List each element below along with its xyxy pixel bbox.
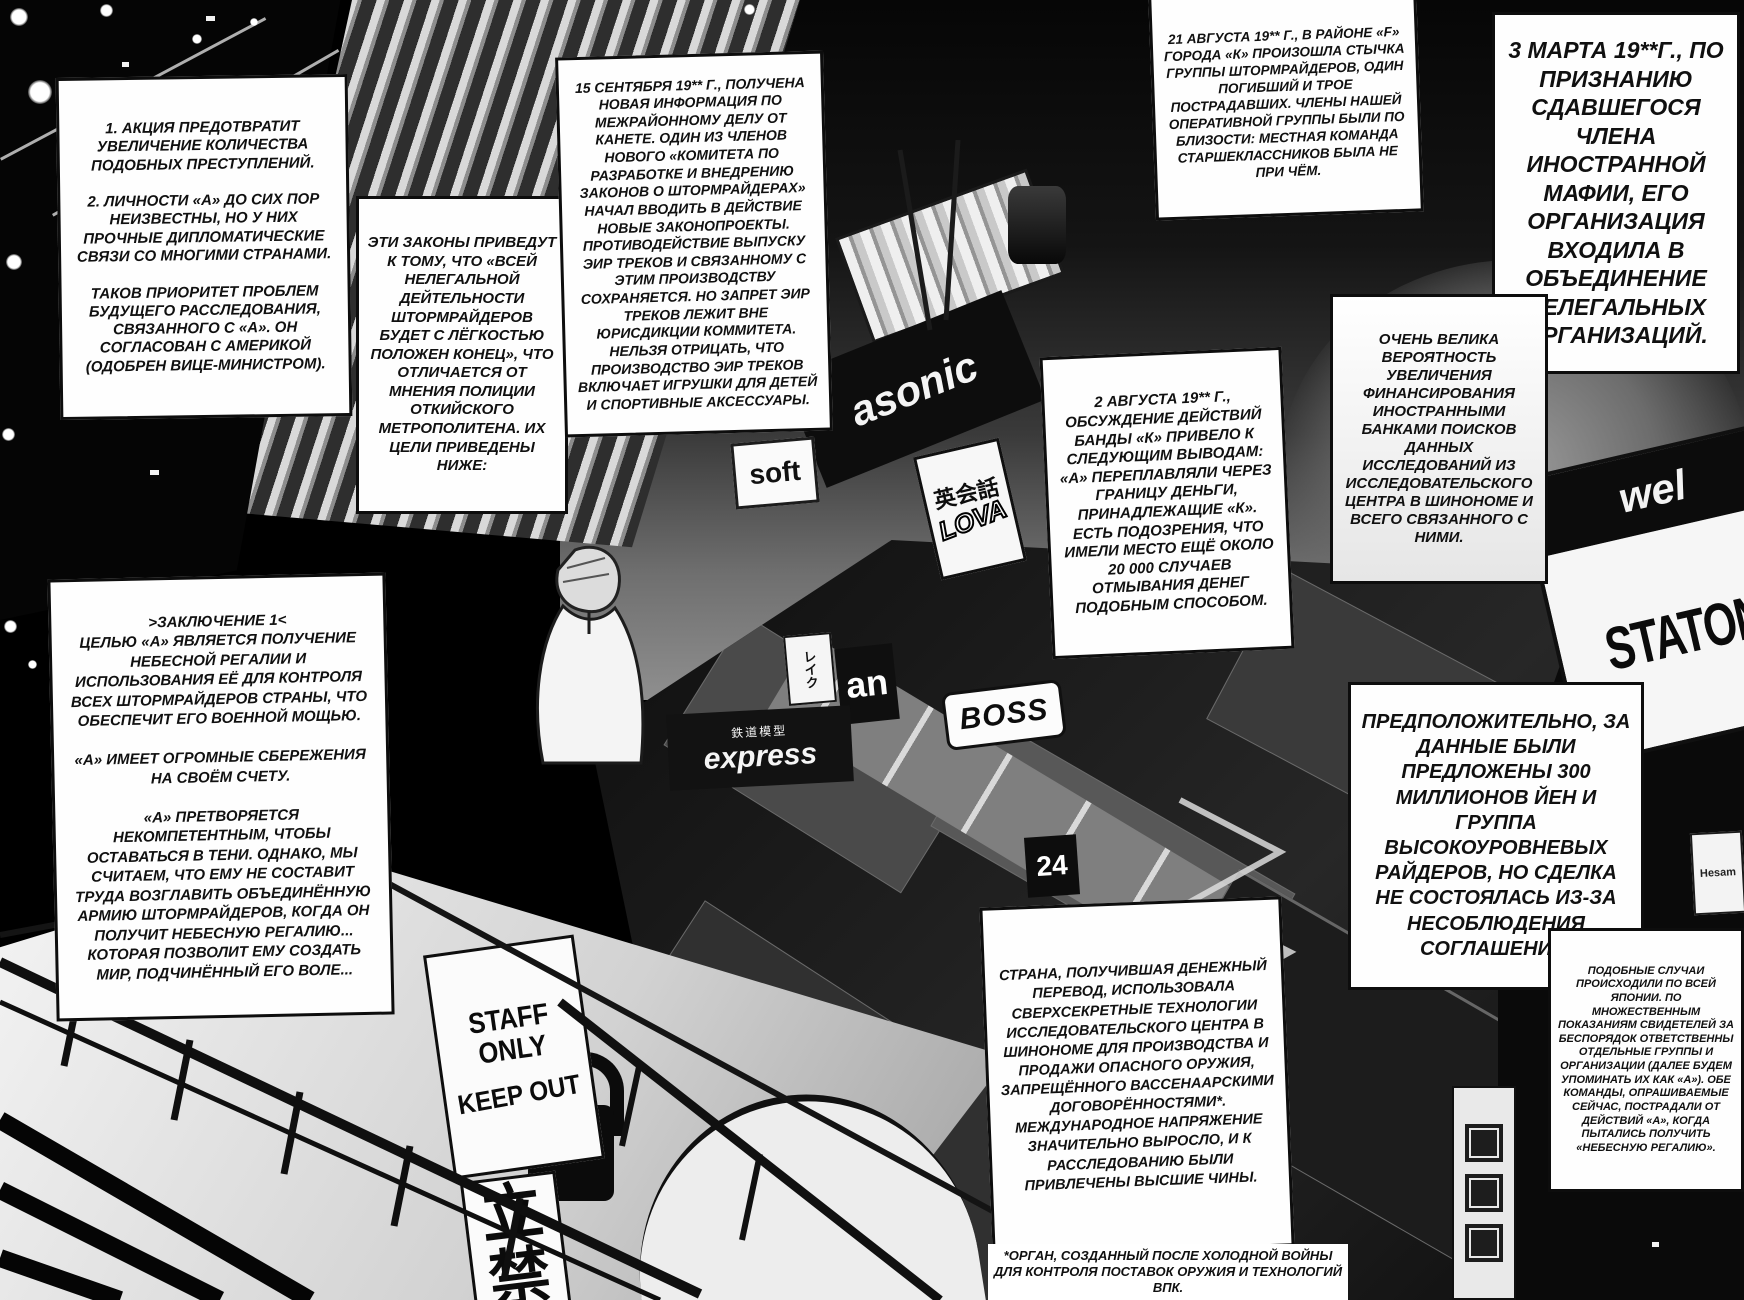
bokeh-light: [2, 428, 15, 441]
an-label: an: [844, 661, 890, 707]
kanji-glyph: [1465, 1174, 1503, 1212]
staff-only-sign: STAFF ONLY KEEP OUT: [423, 935, 605, 1180]
caption-august2-report: 2 АВГУСТА 19** Г., ОБСУЖДЕНИЕ ДЕЙСТВИЙ Б…: [1040, 347, 1295, 659]
express-label: express: [703, 737, 818, 777]
bokeh-light: [4, 620, 17, 633]
kanji-glyph: [1465, 1124, 1503, 1162]
vertical-kanji-sign: [1452, 1086, 1516, 1300]
keep-out-label: KEEP OUT: [456, 1070, 583, 1120]
bokeh-light: [28, 80, 52, 104]
caption-laws: ЭТИ ЗАКОНЫ ПРИВЕДУТ К ТОМУ, ЧТО «ВСЕЙ НЕ…: [356, 196, 568, 514]
station-big-text: STATON: [1598, 580, 1744, 684]
caption-action-plan: 1. АКЦИЯ ПРЕДОТВРАТИТ УВЕЛИЧЕНИЕ КОЛИЧЕС…: [56, 74, 353, 420]
kanji-glyph: [1465, 1224, 1503, 1262]
window-light: [150, 470, 159, 475]
reiku-label: レイク: [799, 649, 821, 690]
bokeh-light: [6, 254, 22, 270]
hesam-label: Hesam: [1700, 866, 1737, 880]
caption-country: СТРАНА, ПОЛУЧИВШАЯ ДЕНЕЖНЫЙ ПЕРЕВОД, ИСП…: [979, 896, 1294, 1257]
window-light: [1652, 1242, 1659, 1247]
bokeh-light: [28, 660, 37, 669]
bokeh-light: [744, 4, 755, 15]
hesam-sign: Hesam: [1690, 831, 1744, 916]
bokeh-light: [100, 4, 113, 17]
bokeh-light: [10, 8, 28, 26]
caption-footnote: *ОРГАН, СОЗДАННЫЙ ПОСЛЕ ХОЛОДНОЙ ВОЙНЫ Д…: [988, 1244, 1348, 1300]
reiku-sign: レイク: [783, 632, 837, 706]
staff-only-label: STAFF ONLY: [467, 999, 555, 1070]
caption-funding-probability: ОЧЕНЬ ВЕЛИКА ВЕРОЯТНОСТЬ УВЕЛИЧЕНИЯ ФИНА…: [1330, 294, 1548, 584]
caption-august21-report: 21 АВГУСТА 19** Г., В РАЙОНЕ «F» ГОРОДА …: [1148, 0, 1424, 221]
boss-label: BOSS: [958, 693, 1051, 738]
express-sign: 鉄道模型 express: [666, 705, 854, 791]
bokeh-light: [250, 18, 258, 26]
caption-conclusion: >ЗАКЛЮЧЕНИЕ 1< ЦЕЛЬЮ «А» ЯВЛЯЕТСЯ ПОЛУЧЕ…: [47, 573, 394, 1022]
caption-september-report: 15 СЕНТЯБРЯ 19** Г., ПОЛУЧЕНА НОВАЯ ИНФО…: [555, 51, 833, 438]
sign-24: 24: [1024, 834, 1080, 897]
window-light: [122, 62, 129, 67]
sign-24-label: 24: [1035, 849, 1068, 883]
panasonic-sign-label: asonic: [843, 342, 984, 436]
manga-page: asonic soft 英会話 LOVA レイク an 鉄道模型 express…: [0, 0, 1744, 1300]
window-light: [206, 16, 215, 21]
soft-sign: soft: [730, 436, 819, 509]
bokeh-light: [192, 34, 202, 44]
no-entry-kanji-label: 立 禁: [477, 1178, 554, 1300]
no-entry-kanji-sign: 立 禁: [460, 1171, 572, 1300]
caption-similar-cases: ПОДОБНЫЕ СЛУЧАИ ПРОИСХОДИЛИ ПО ВСЕЙ ЯПОН…: [1548, 928, 1744, 1192]
soft-sign-label: soft: [748, 455, 802, 491]
water-tank: [1008, 186, 1066, 264]
